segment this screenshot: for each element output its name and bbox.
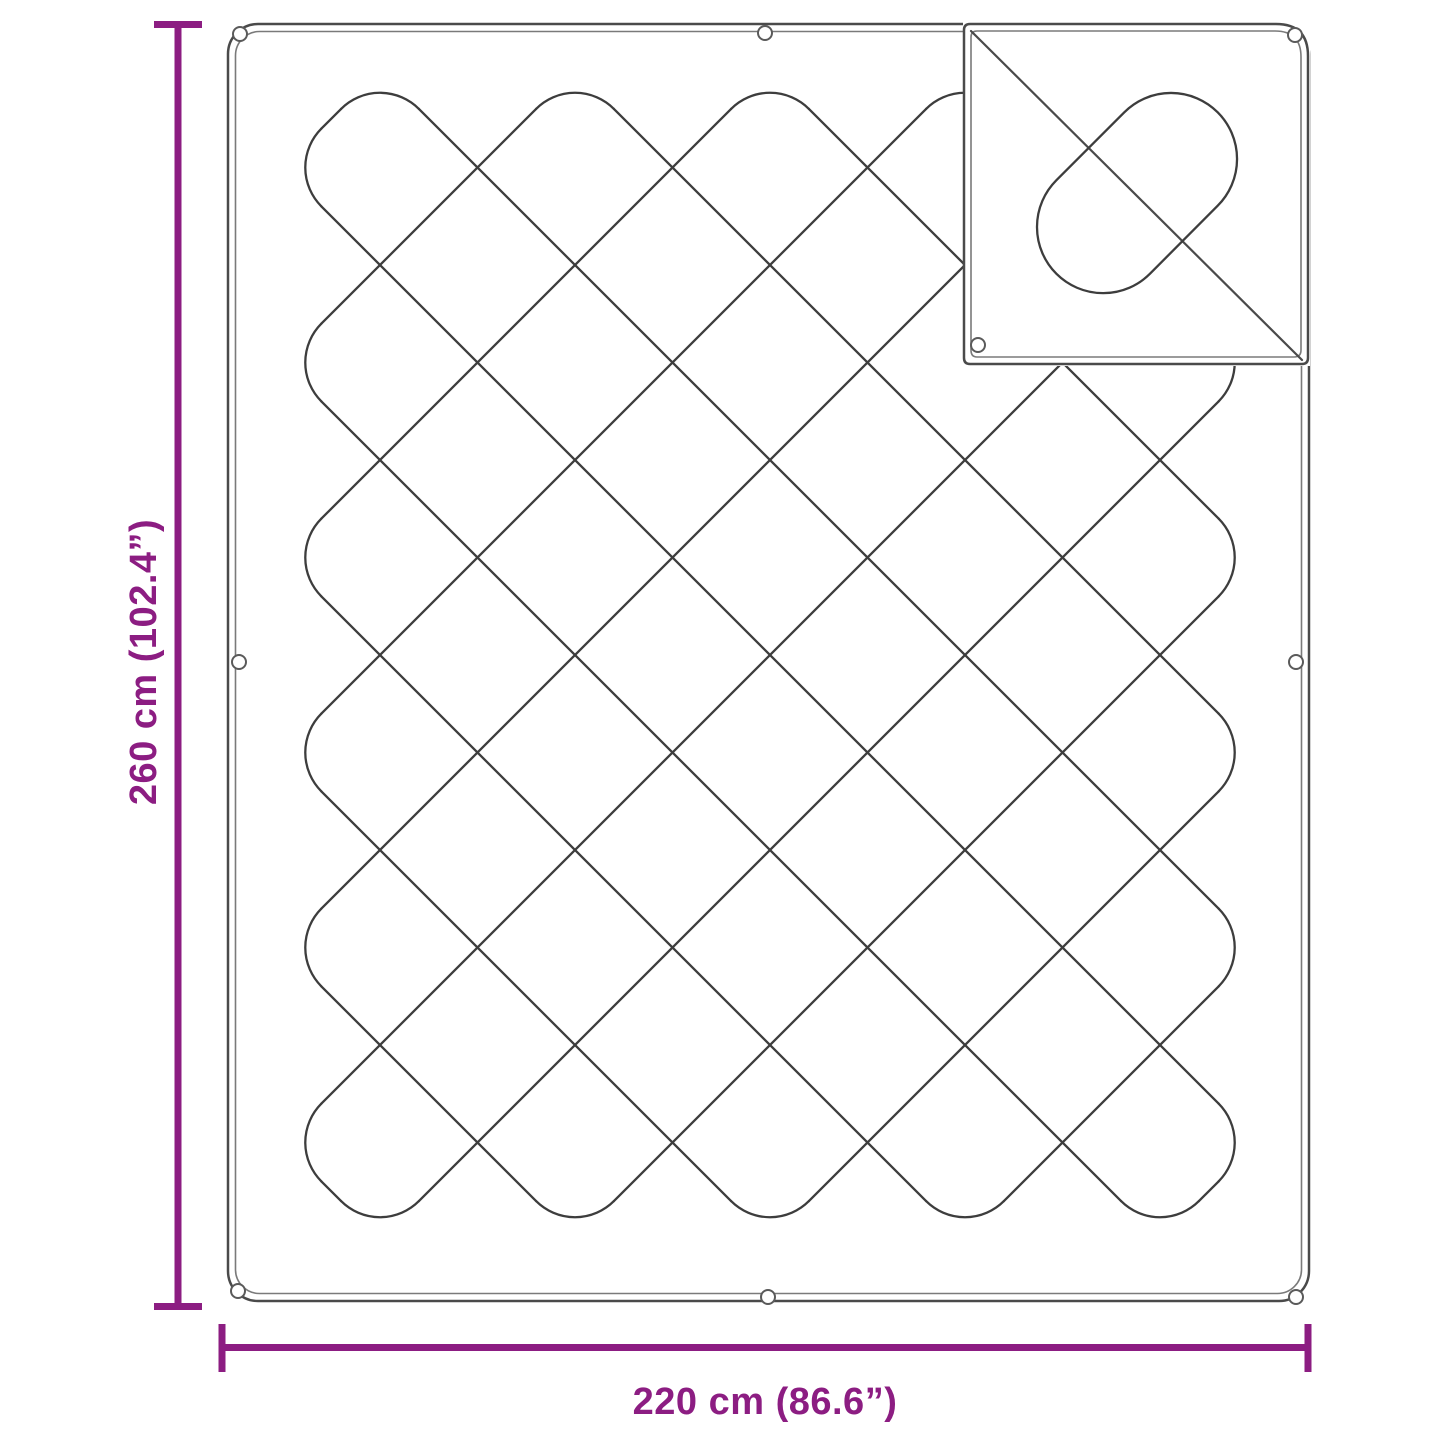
stitch-turn-arc xyxy=(305,129,321,207)
snap-button-top-center xyxy=(758,26,772,40)
stitch-line xyxy=(321,1181,341,1201)
snap-button-fold-bottom-left xyxy=(971,338,985,352)
width-dimension-line xyxy=(222,1344,1308,1351)
stitch-turn-arc xyxy=(305,1104,321,1182)
snap-button-bottom-left xyxy=(231,1284,245,1298)
height-dimension-indicator: 260 cm (102.4”) xyxy=(123,21,202,1310)
snap-button-bottom-right xyxy=(1289,1290,1303,1304)
snap-button-fold-top-right xyxy=(1288,28,1302,42)
height-dimension-line xyxy=(175,24,182,1307)
stitch-turn-arc xyxy=(305,714,321,792)
stitch-turn-arc xyxy=(1219,1104,1235,1182)
height-dimension-label: 260 cm (102.4”) xyxy=(123,519,165,805)
stitch-turn-arc xyxy=(536,1201,614,1217)
stitch-line xyxy=(614,596,1219,1201)
stitch-line xyxy=(1199,1181,1219,1201)
stitch-line xyxy=(321,401,1121,1201)
stitch-turn-arc xyxy=(1219,909,1235,987)
width-dimension-label: 220 cm (86.6”) xyxy=(633,1381,898,1423)
stitch-turn-arc xyxy=(305,324,321,402)
stitch-line xyxy=(419,401,1219,1201)
stitch-line xyxy=(321,109,536,324)
stitch-turn-arc xyxy=(926,1201,1004,1217)
stitch-line xyxy=(1004,986,1219,1201)
stitch-line xyxy=(321,109,731,519)
stitch-line xyxy=(321,791,731,1201)
snap-button-mid-left xyxy=(232,655,246,669)
snap-button-bottom-center xyxy=(761,1290,775,1304)
stitch-turn-arc xyxy=(731,1201,809,1217)
stitch-turn-arc xyxy=(305,909,321,987)
snap-button-mid-right xyxy=(1289,655,1303,669)
stitch-line xyxy=(321,986,536,1201)
diagram-canvas: 260 cm (102.4”) 220 cm (86.6”) xyxy=(0,0,1445,1445)
stitch-turn-arc xyxy=(731,93,809,109)
stitch-line xyxy=(321,109,341,129)
blanket-dimension-diagram: 260 cm (102.4”) 220 cm (86.6”) xyxy=(0,0,1445,1445)
stitch-turn-arc xyxy=(1121,1201,1199,1217)
stitch-turn-arc xyxy=(536,93,614,109)
stitch-line xyxy=(321,109,926,714)
height-dimension-cap-bottom xyxy=(154,1303,202,1310)
stitch-turn-arc xyxy=(1219,519,1235,597)
stitch-turn-arc xyxy=(341,1201,419,1217)
folded-corner xyxy=(963,22,1310,366)
stitch-turn-arc xyxy=(305,519,321,597)
width-dimension-indicator: 220 cm (86.6”) xyxy=(219,1324,1312,1423)
stitch-turn-arc xyxy=(341,93,419,109)
stitch-line xyxy=(321,596,926,1201)
snap-button-top-left xyxy=(233,27,247,41)
stitch-turn-arc xyxy=(1219,714,1235,792)
stitch-line xyxy=(809,791,1219,1201)
width-dimension-cap-right xyxy=(1305,1324,1312,1372)
